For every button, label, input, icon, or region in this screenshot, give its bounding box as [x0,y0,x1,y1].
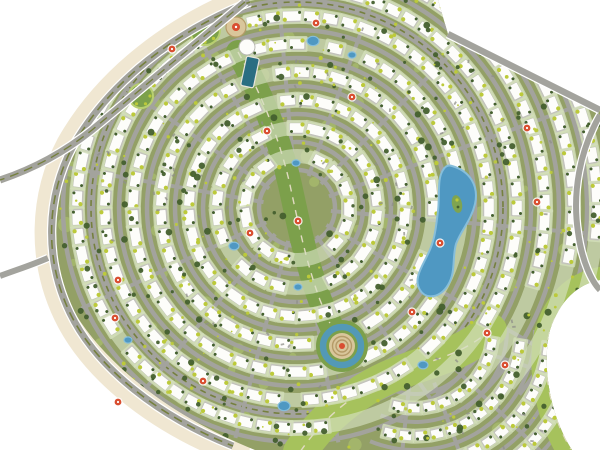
villa-block [367,187,385,210]
amenity-marker [113,275,122,284]
masterplan-map [0,0,600,450]
amenity-marker [435,238,444,247]
pond [278,401,290,410]
villa-block [291,64,313,81]
amenity-marker [198,376,207,385]
amenity-marker [113,397,122,406]
pond [348,52,356,58]
masterplan-svg [0,0,600,450]
amenity-marker [110,313,119,322]
villa-block [98,225,117,248]
villa-block [208,206,226,229]
villa-block [97,207,114,229]
villa-block [69,207,86,229]
pond [124,337,132,343]
villa-block [69,188,86,210]
amphitheater-plaza [316,320,368,372]
amenity-marker [293,216,302,225]
amenity-marker [522,123,531,132]
amenity-marker [167,44,176,53]
villa-block [535,172,553,195]
amenity-marker [407,307,416,316]
pond [229,242,239,250]
pond [294,284,302,290]
villa-block [507,178,525,200]
villa-block [509,198,525,219]
amenity-marker [500,360,509,369]
amenity-marker [262,126,271,135]
amenity-marker [482,328,491,337]
amenity-marker [245,228,254,237]
amenity-marker [311,18,320,27]
villa-block [276,92,298,110]
amenity-marker [347,92,356,101]
pond [307,36,319,45]
villa-block [153,206,170,228]
amenity-marker [532,197,541,206]
pond [292,160,300,166]
villa-block [587,220,600,242]
villa-block [287,36,308,52]
pond [418,361,428,369]
